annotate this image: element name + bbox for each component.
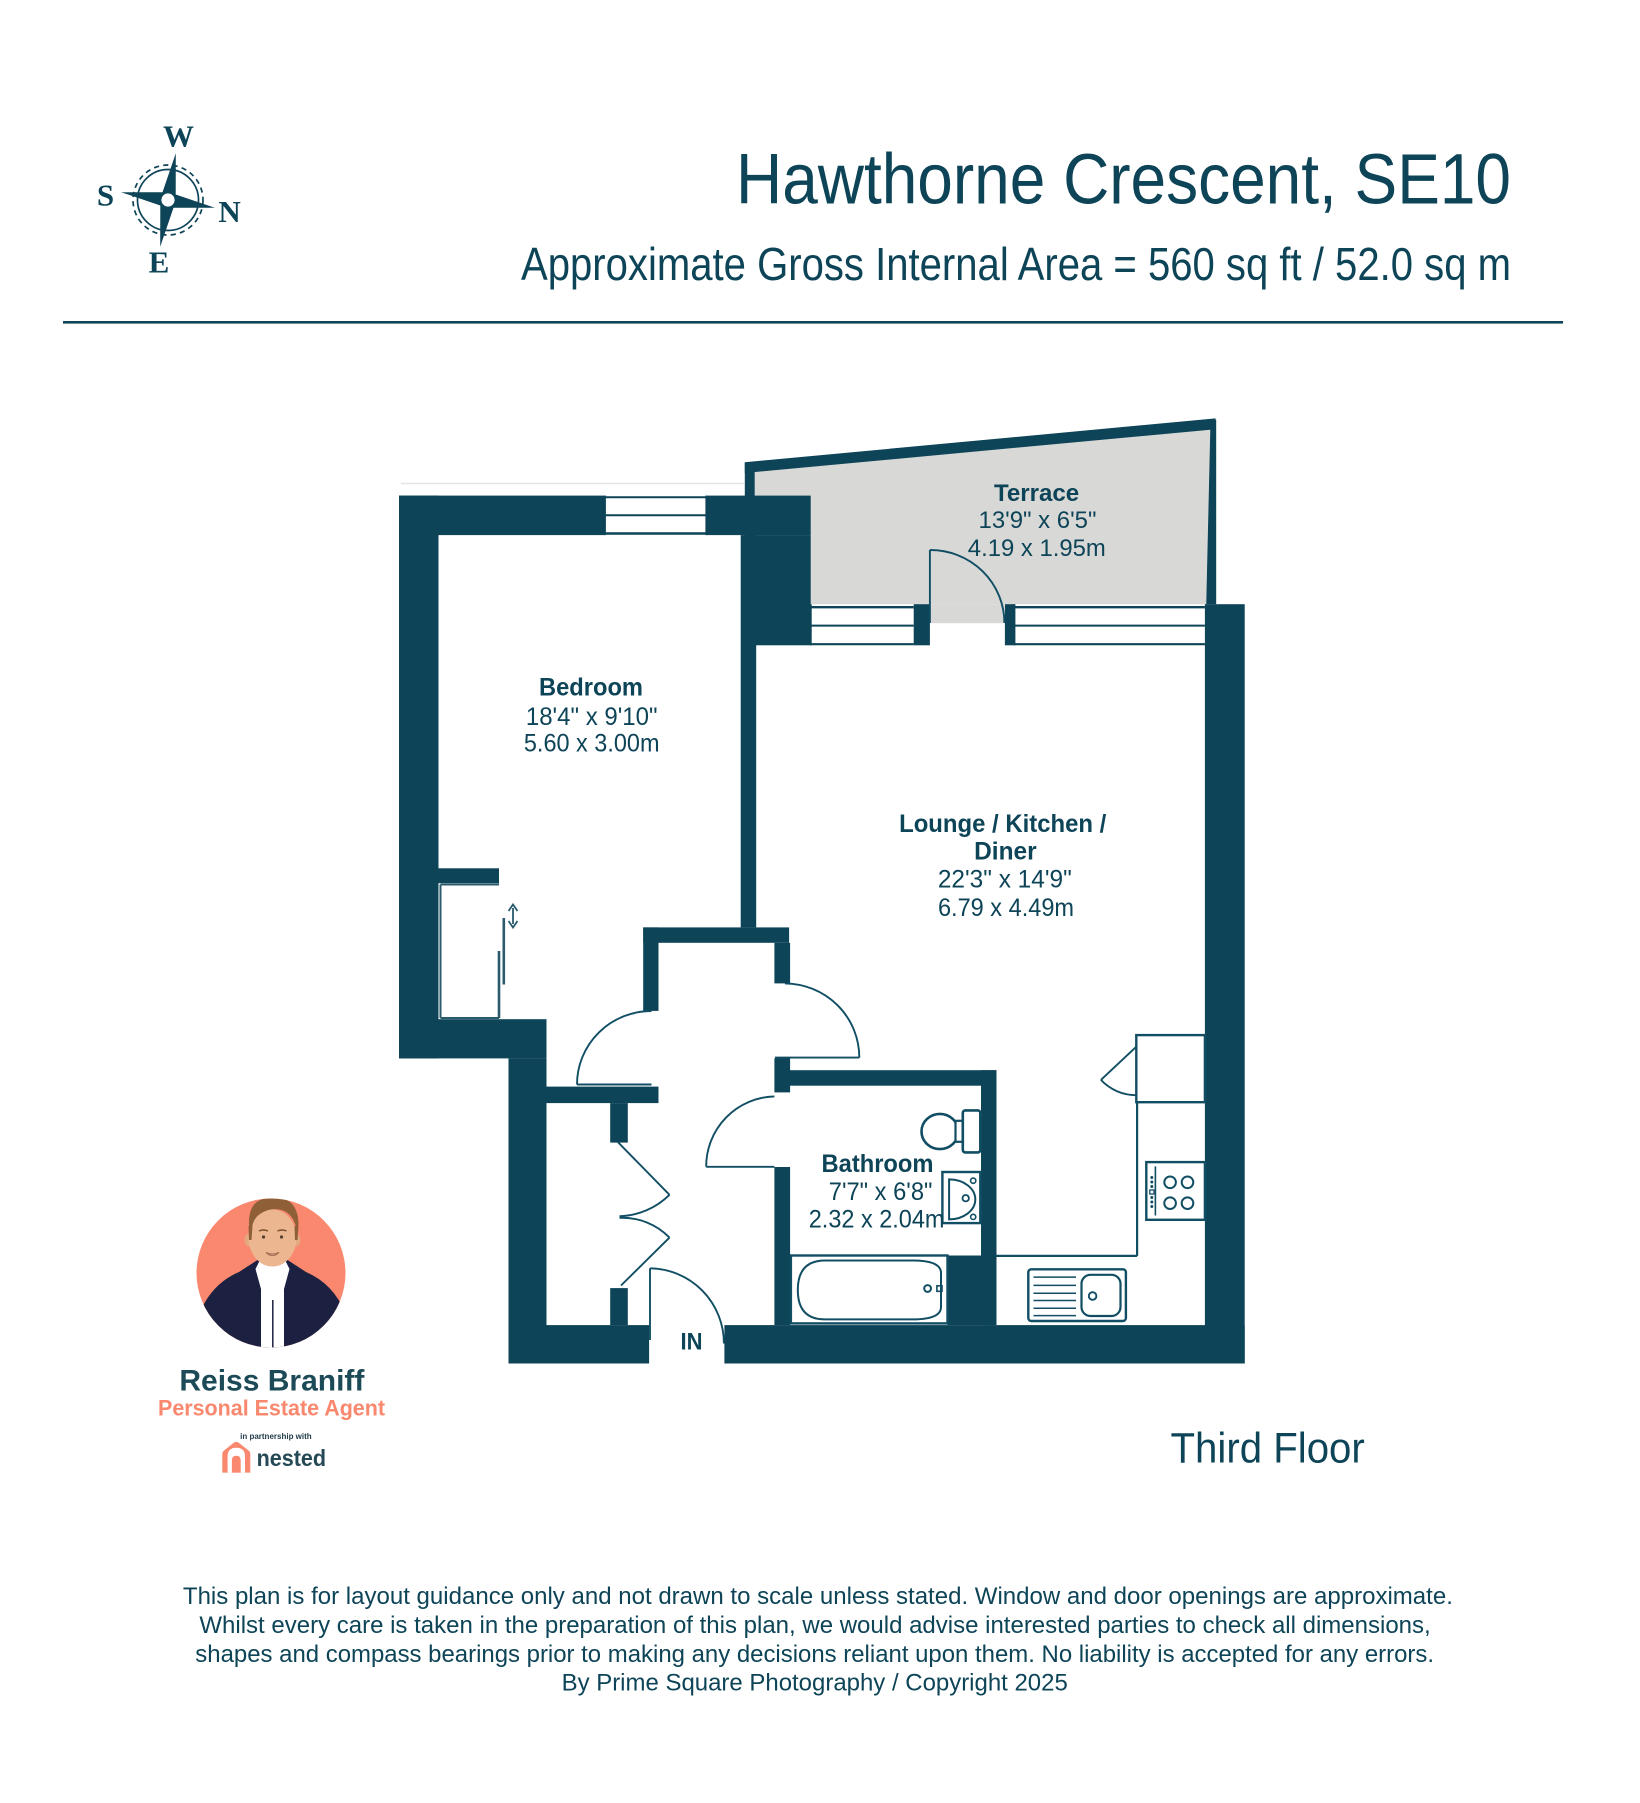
svg-text:Whilst every care is taken in: Whilst every care is taken in the prepar… xyxy=(199,1612,1430,1639)
svg-text:6.79 x 4.49m: 6.79 x 4.49m xyxy=(938,894,1074,922)
svg-text:7'7" x 6'8": 7'7" x 6'8" xyxy=(829,1178,933,1206)
svg-text:22'3" x 14'9": 22'3" x 14'9" xyxy=(938,866,1072,894)
svg-text:in partnership with: in partnership with xyxy=(240,1432,312,1441)
svg-text:Terrace: Terrace xyxy=(994,480,1079,507)
svg-text:Bedroom: Bedroom xyxy=(539,673,643,701)
svg-text:2.32 x 2.04m: 2.32 x 2.04m xyxy=(809,1206,945,1234)
svg-text:W: W xyxy=(163,119,194,154)
svg-text:Reiss Braniff: Reiss Braniff xyxy=(179,1365,365,1398)
svg-text:By Prime Square Photography /: By Prime Square Photography / Copyright … xyxy=(562,1670,1068,1697)
svg-text:Personal Estate Agent: Personal Estate Agent xyxy=(158,1396,386,1421)
svg-text:4.19 x 1.95m: 4.19 x 1.95m xyxy=(968,535,1106,562)
svg-text:Diner: Diner xyxy=(974,838,1037,866)
svg-text:18'4" x 9'10": 18'4" x 9'10" xyxy=(526,703,658,731)
svg-text:Third Floor: Third Floor xyxy=(1171,1424,1365,1472)
svg-text:S: S xyxy=(97,177,114,212)
svg-text:This plan is for layout guidan: This plan is for layout guidance only an… xyxy=(183,1583,1453,1610)
svg-text:13'9" x 6'5": 13'9" x 6'5" xyxy=(979,507,1097,534)
svg-text:Approximate Gross Internal Are: Approximate Gross Internal Area = 560 sq… xyxy=(521,238,1511,290)
svg-text:shapes and compass bearings pr: shapes and compass bearings prior to mak… xyxy=(195,1641,1434,1668)
svg-text:Bathroom: Bathroom xyxy=(822,1150,934,1178)
svg-text:5.60 x 3.00m: 5.60 x 3.00m xyxy=(524,730,660,758)
svg-text:N: N xyxy=(218,194,240,229)
svg-text:IN: IN xyxy=(681,1329,703,1356)
svg-text:nested: nested xyxy=(257,1445,327,1471)
svg-text:Lounge / Kitchen /: Lounge / Kitchen / xyxy=(899,810,1106,838)
svg-text:Hawthorne Crescent, SE10: Hawthorne Crescent, SE10 xyxy=(736,140,1511,219)
svg-text:E: E xyxy=(149,244,170,279)
